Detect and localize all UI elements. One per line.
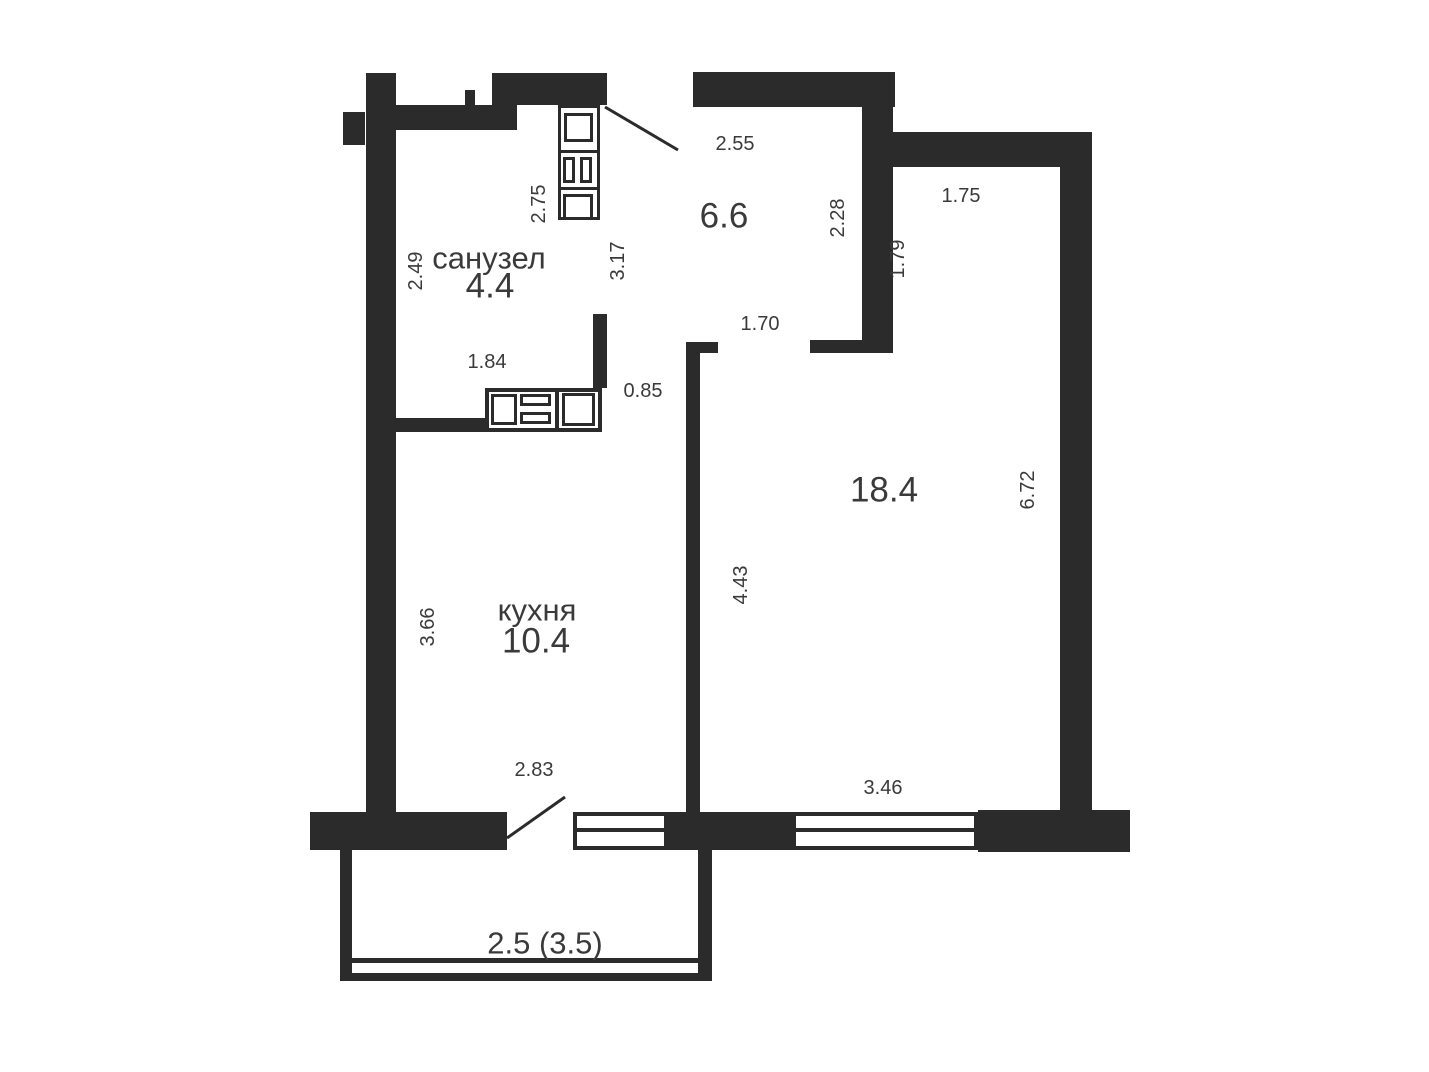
dim-label-kitchen-left: 3.66 — [418, 608, 438, 647]
dim-label-living-right: 6.72 — [1018, 471, 1038, 510]
counter-cabinet-icon — [562, 393, 595, 426]
washer-icon — [564, 113, 593, 142]
dim-label-living-top: 1.75 — [942, 186, 981, 206]
sink-icon — [563, 194, 593, 220]
dim-label-hall-right: 2.28 — [828, 199, 848, 238]
dim-label-bath-fixture: 2.75 — [529, 185, 549, 224]
counter-divider — [555, 392, 559, 428]
balcony-area-label: 2.5 (3.5) — [487, 928, 602, 959]
balcony-door-swing-icon — [507, 797, 565, 838]
dim-label-living-upper-left: 1.79 — [888, 240, 908, 279]
counter-sink-icon — [491, 394, 517, 425]
dim-label-bath-bottom: 1.84 — [468, 352, 507, 372]
kitchen-area-label: 10.4 — [502, 624, 570, 659]
dim-label-living-left: 4.43 — [731, 566, 751, 605]
stove-burner-bottom-icon — [520, 412, 551, 424]
fixture-divider — [561, 187, 597, 190]
tap-right-icon — [580, 157, 592, 183]
dim-label-hall-top: 2.55 — [716, 134, 755, 154]
dim-label-kitchen-bottom: 2.83 — [515, 760, 554, 780]
bathroom-area-label: 4.4 — [466, 269, 515, 304]
dim-label-bath-hall: 3.17 — [608, 242, 628, 281]
door-swing-lines — [0, 0, 1429, 1072]
washer-sink-unit-icon — [558, 105, 600, 220]
dim-label-bath-left: 2.49 — [406, 252, 426, 291]
living-area-label: 18.4 — [850, 473, 918, 508]
stove-burner-top-icon — [520, 394, 551, 406]
floor-plan: санузел 4.4 6.6 кухня 10.4 18.4 2.5 (3.5… — [0, 0, 1429, 1072]
counter-sink-stove-icon — [485, 388, 602, 432]
hallway-area-label: 6.6 — [700, 199, 749, 234]
dim-label-living-door: 1.70 — [741, 314, 780, 334]
entry-door-swing-icon — [605, 107, 678, 150]
fixture-divider — [561, 150, 597, 153]
dim-label-bath-door: 0.85 — [624, 381, 663, 401]
tap-left-icon — [563, 157, 575, 183]
dim-label-living-window: 3.46 — [864, 778, 903, 798]
